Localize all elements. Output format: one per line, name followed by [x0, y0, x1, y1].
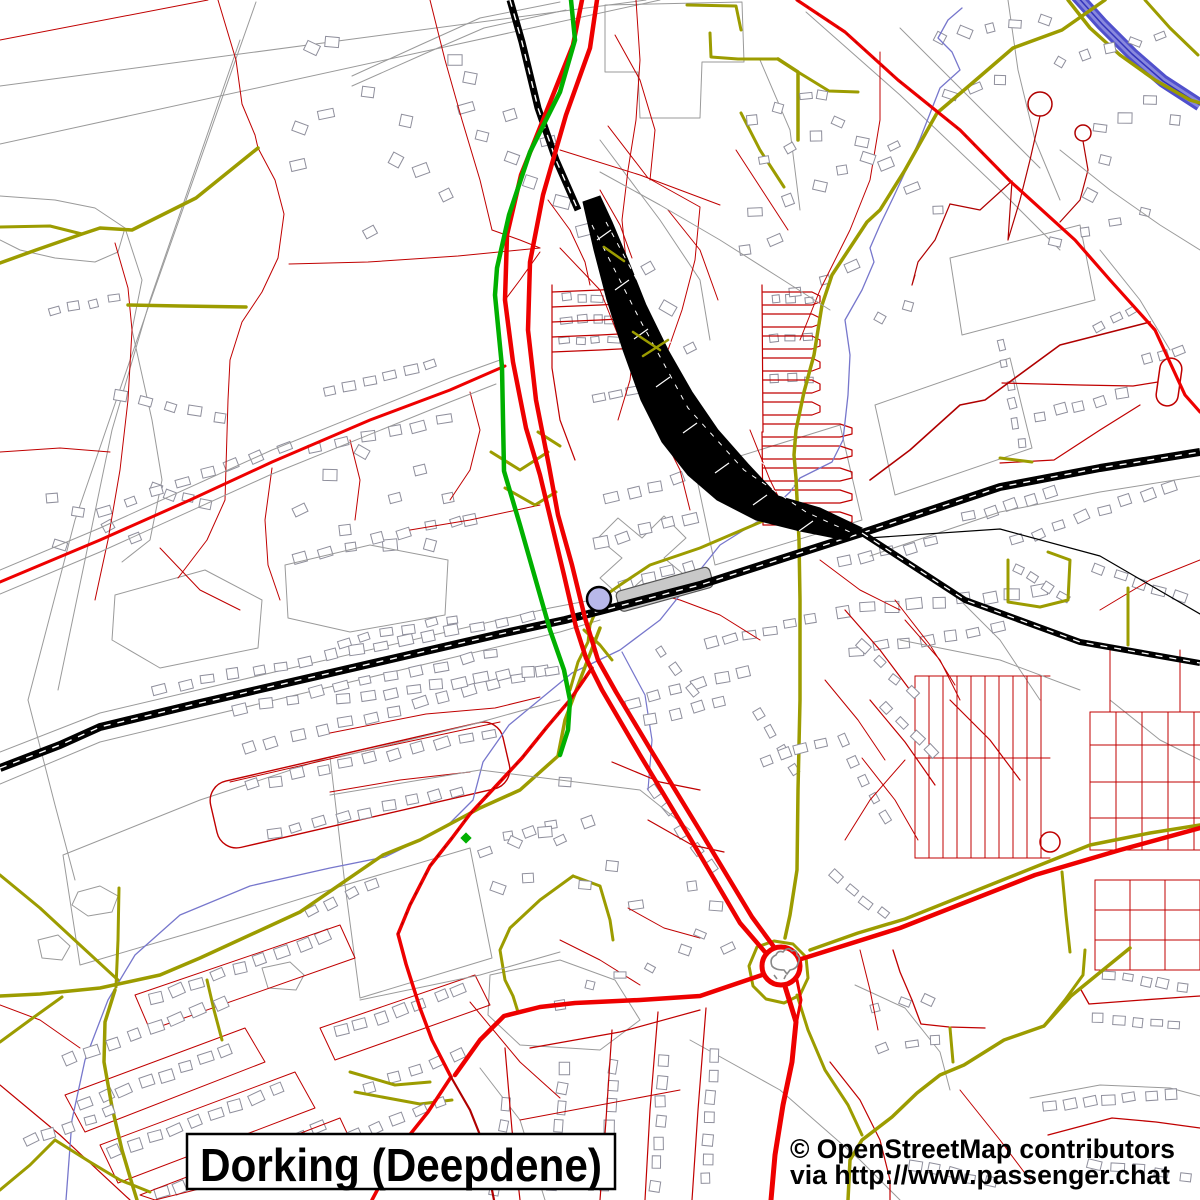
svg-text:via http://www.passenger.chat: via http://www.passenger.chat	[790, 1160, 1170, 1190]
svg-text:Dorking (Deepdene): Dorking (Deepdene)	[200, 1139, 602, 1191]
